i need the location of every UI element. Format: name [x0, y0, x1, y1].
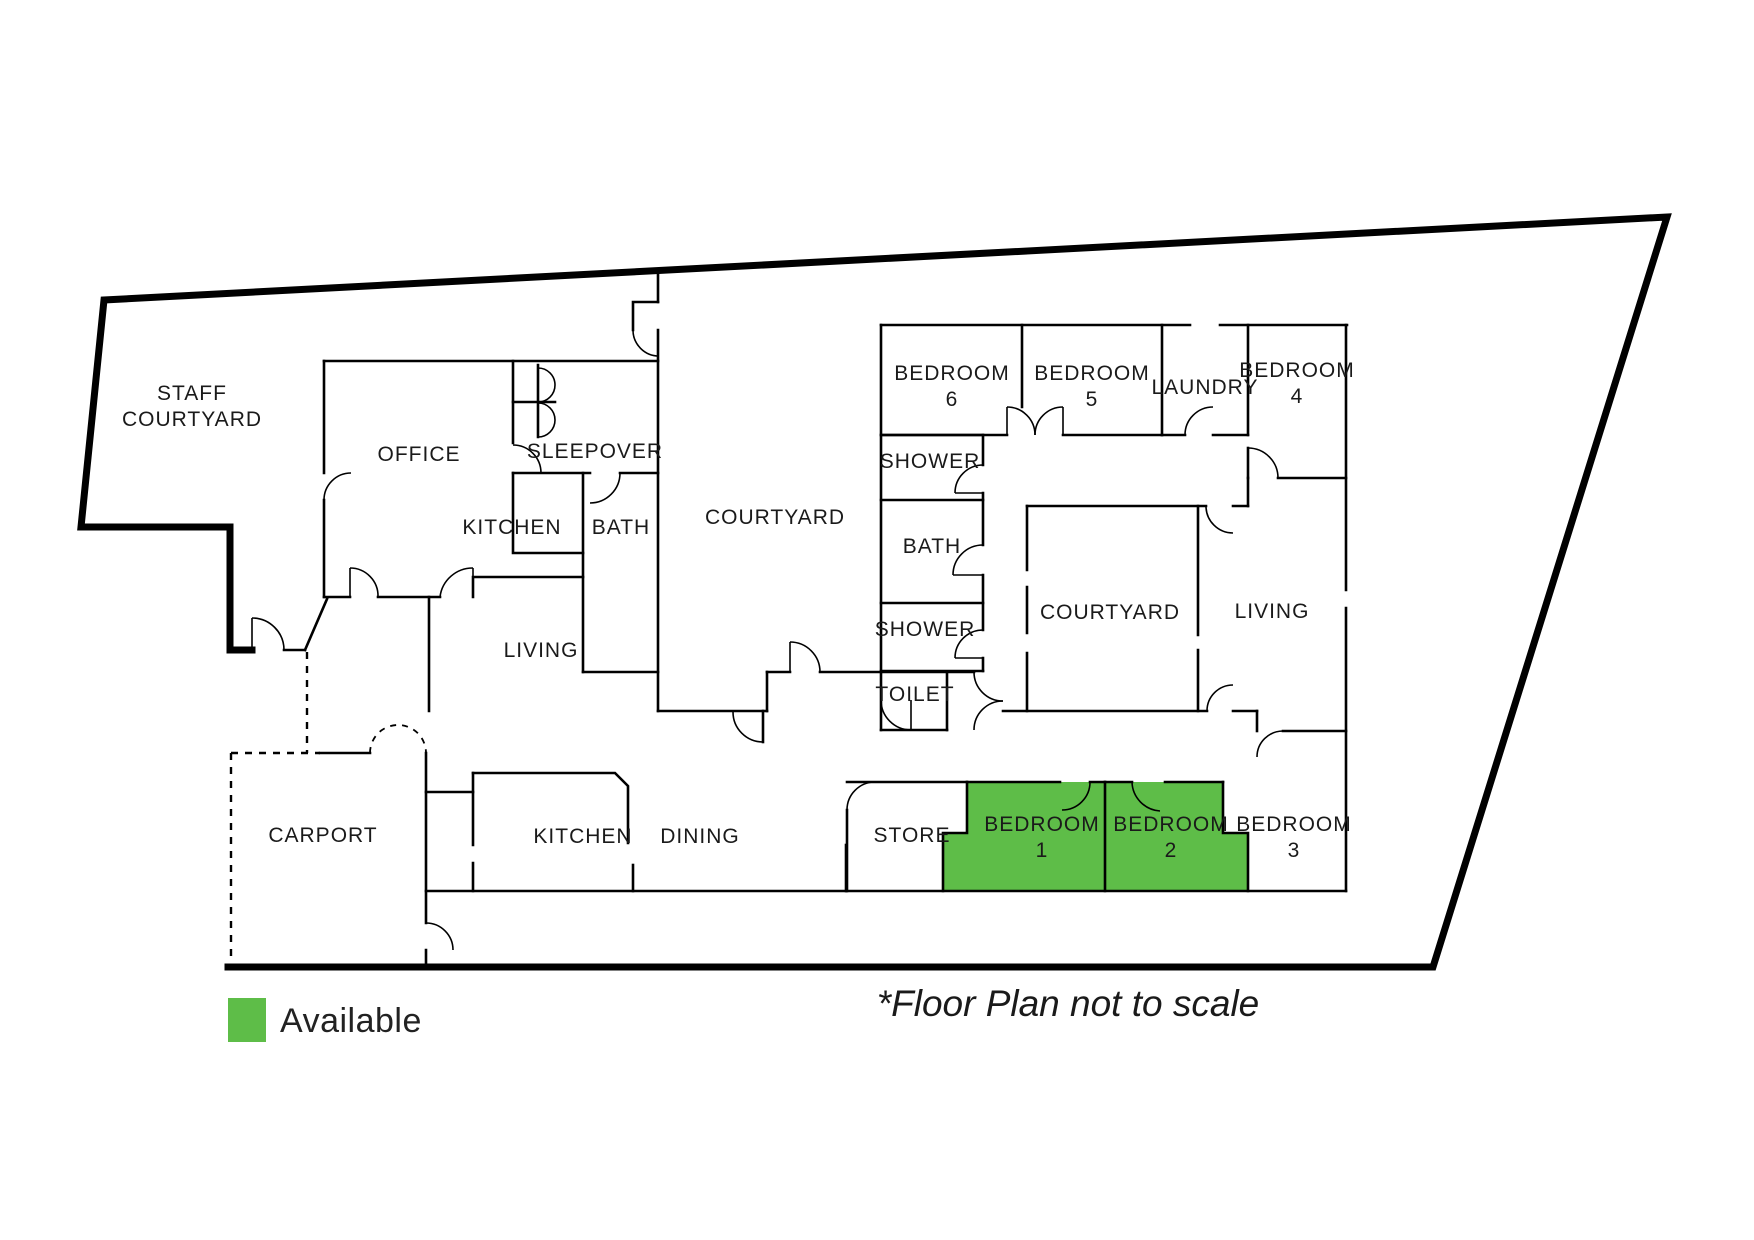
- wall: [847, 782, 875, 810]
- room-label-courtyard-inner: COURTYARD: [1040, 601, 1180, 624]
- wall: [370, 725, 426, 753]
- scale-note: *Floor Plan not to scale: [877, 983, 1260, 1024]
- room-label-bedroom-5: BEDROOM5: [1034, 362, 1150, 411]
- wall: [974, 701, 1003, 730]
- floor-plan-svg: STAFFCOURTYARDOFFICESLEEPOVERKITCHENBATH…: [0, 0, 1754, 1240]
- legend-available-label: Available: [280, 1002, 422, 1040]
- room-label-shower-2: SHOWER: [875, 618, 976, 641]
- available-rooms: [943, 782, 1248, 891]
- walls: [81, 217, 1667, 967]
- wall: [1206, 506, 1233, 533]
- wall: [1035, 407, 1063, 435]
- wall: [590, 473, 620, 503]
- wall: [1248, 448, 1278, 478]
- room-label-courtyard-mid: COURTYARD: [705, 506, 845, 529]
- room-label-living-left: LIVING: [504, 639, 579, 662]
- wall: [633, 302, 658, 330]
- wall: [633, 330, 659, 356]
- wall: [1207, 685, 1233, 711]
- room-label-sleepover: SLEEPOVER: [527, 440, 663, 463]
- room-label-office: OFFICE: [378, 443, 461, 466]
- legend: Available: [228, 998, 422, 1042]
- room-label-living-right: LIVING: [1235, 600, 1310, 623]
- room-label-bath-top: BATH: [592, 516, 650, 539]
- room-label-kitchen-2: KITCHEN: [533, 825, 632, 848]
- wall: [1257, 731, 1283, 757]
- wall: [513, 473, 583, 553]
- room-label-bedroom-6: BEDROOM6: [894, 362, 1010, 411]
- room-label-dining: DINING: [660, 825, 740, 848]
- wall: [538, 403, 555, 437]
- wall: [426, 923, 453, 950]
- floor-plan-page: STAFFCOURTYARDOFFICESLEEPOVERKITCHENBATH…: [0, 0, 1754, 1240]
- wall: [733, 712, 763, 742]
- room-label-toilet: TOILET: [875, 683, 954, 706]
- legend-available-swatch: [228, 998, 266, 1042]
- wall: [252, 618, 284, 650]
- wall: [324, 473, 351, 500]
- bedroom-2-highlight: [1105, 782, 1248, 891]
- room-label-bath-right: BATH: [903, 535, 961, 558]
- wall: [790, 642, 820, 672]
- wall: [350, 568, 378, 597]
- room-label-store: STORE: [874, 824, 951, 847]
- wall: [440, 568, 473, 597]
- wall: [1007, 407, 1035, 435]
- room-label-shower-1: SHOWER: [880, 450, 981, 473]
- room-label-staff-courtyard: STAFFCOURTYARD: [122, 382, 262, 431]
- wall: [1185, 407, 1213, 435]
- wall: [538, 368, 555, 402]
- room-label-kitchen-top: KITCHEN: [462, 516, 561, 539]
- wall: [473, 577, 583, 597]
- room-label-carport: CARPORT: [268, 824, 377, 847]
- wall: [305, 599, 327, 650]
- wall: [974, 672, 1003, 701]
- room-label-bedroom-3: BEDROOM3: [1236, 813, 1352, 862]
- property-boundary: [81, 217, 1667, 967]
